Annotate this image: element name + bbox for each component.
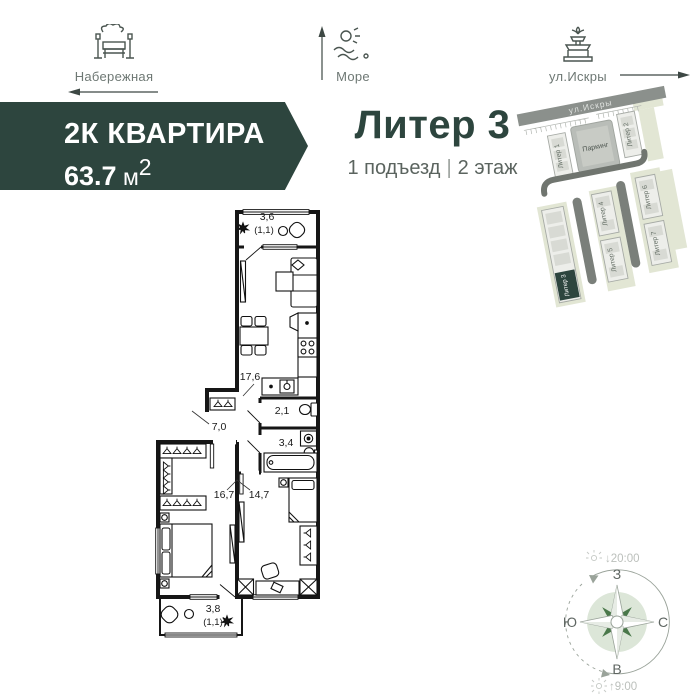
room-area-label: 17,6 xyxy=(240,371,261,383)
room-area-label: 3,6 xyxy=(260,211,275,223)
building-title-block: Литер 3 1 подъезд|2 этаж xyxy=(340,103,525,180)
plant-icon xyxy=(222,616,232,626)
wardrobe xyxy=(300,526,317,565)
building-title: Литер 3 xyxy=(340,103,525,148)
kitchen-counter xyxy=(262,313,317,395)
double-bed xyxy=(160,524,212,577)
tv xyxy=(239,502,244,542)
landmark-embankment: Набережная xyxy=(62,24,166,100)
building-parking: Паркинг xyxy=(570,120,620,173)
shaft xyxy=(238,579,254,595)
building-liter-2: Литер 2 xyxy=(617,111,643,158)
balcony-chair xyxy=(287,220,307,240)
room-area-label: 3,8 xyxy=(206,603,221,615)
entrance-floor: 1 подъезд|2 этаж xyxy=(340,157,525,180)
compass-south: Ю xyxy=(563,614,577,630)
arrow-up-icon xyxy=(316,26,328,87)
single-bed xyxy=(289,478,317,522)
room-area-label: 2,1 xyxy=(275,405,290,417)
tv xyxy=(230,525,235,563)
site-plan: ул.Искры Литер 1 Паркинг Литер 2 xyxy=(505,85,700,360)
floor-plan: 3,6 (1,1) 17,6 7,0 2,1 3,4 16,7 14,7 3,8… xyxy=(140,195,340,675)
room-area-reduced: (1,1) xyxy=(203,617,223,628)
room-area-label: 3,4 xyxy=(279,437,294,449)
desk xyxy=(256,581,299,595)
bench-trees-icon xyxy=(91,24,137,64)
compass-center xyxy=(611,616,623,628)
room-area-reduced: (1,1) xyxy=(254,225,274,236)
arrow-right-icon xyxy=(620,67,690,85)
compass-east: В xyxy=(612,661,621,677)
landmark-sea: Море xyxy=(330,26,376,84)
coat-rack xyxy=(210,398,235,410)
room-area-label: 14,7 xyxy=(249,489,270,501)
wardrobe xyxy=(160,444,206,458)
arrow-left-icon xyxy=(68,87,160,97)
landmark-label: Море xyxy=(330,69,376,84)
balcony-chair xyxy=(159,604,180,625)
nightstand xyxy=(160,513,169,522)
sofa xyxy=(291,258,317,307)
nightstand xyxy=(160,579,169,588)
tv xyxy=(241,261,246,302)
plant-icon xyxy=(238,223,248,233)
fountain-icon xyxy=(556,24,600,64)
apartment-badge: 2К КВАРТИРА 63.7 м2 xyxy=(0,102,308,190)
sunset-icon xyxy=(586,550,602,561)
flat-plan-poster: Набережная Море xyxy=(0,0,700,700)
building-liter-1: Литер 1 xyxy=(547,133,573,180)
sunrise-icon xyxy=(591,678,607,694)
washing-machine xyxy=(301,431,317,446)
balcony-table xyxy=(185,610,194,619)
compass-north: С xyxy=(658,614,668,630)
apartment-type: 2К КВАРТИРА xyxy=(64,118,265,151)
dining-set xyxy=(240,317,268,356)
nightstand xyxy=(279,478,288,487)
svg-text:↓20:00: ↓20:00 xyxy=(605,553,640,565)
svg-text:↑9:00: ↑9:00 xyxy=(609,681,637,693)
compass-rose: З С Ю В ↓20:00 ↑9:00 xyxy=(542,547,692,697)
shaft xyxy=(300,579,317,595)
sun-waves-icon xyxy=(332,26,374,64)
sunset-annotation: ↓20:00 xyxy=(586,550,640,565)
apartment-area: 63.7 м2 xyxy=(64,154,152,192)
room-area-label: 7,0 xyxy=(212,421,227,433)
room-area-label: 16,7 xyxy=(214,489,235,501)
bathtub xyxy=(264,453,317,472)
toilet xyxy=(300,403,318,416)
landmark-label: Набережная xyxy=(62,69,166,84)
landmark-street: ул.Искры xyxy=(540,24,616,84)
compass-west: З xyxy=(613,566,621,582)
side-wardrobe xyxy=(160,458,172,494)
desk-chair xyxy=(260,562,280,580)
wardrobe xyxy=(160,496,206,510)
coffee-table xyxy=(276,272,293,291)
landmark-label: ул.Искры xyxy=(540,69,616,84)
balcony-table xyxy=(279,227,288,236)
sunrise-annotation: ↑9:00 xyxy=(591,678,637,694)
